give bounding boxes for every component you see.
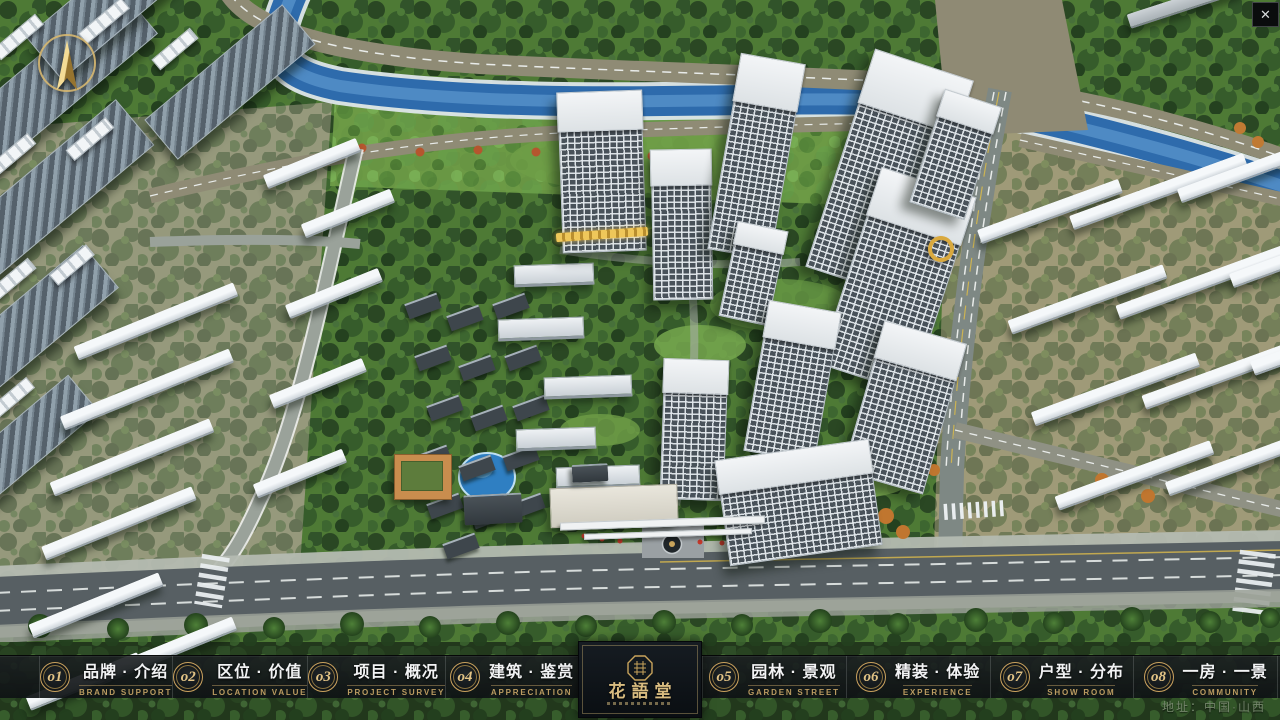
close-icon: ✕ [1260,7,1271,23]
nav-label-en: GARDEN STREET [748,685,840,697]
nav-item-project[interactable]: o3 项目 · 概况 PROJECT SURVEY [307,656,445,698]
building-row [285,268,383,319]
nav-label-zh: 项目 · 概况 [354,658,439,682]
nav-number: o3 [316,669,331,686]
building-courtyard [458,355,495,382]
compass-needle-icon [50,40,84,90]
project-address: 地址：中国·山西 [1162,698,1266,715]
nav-label-en: BRAND SUPPORT [79,685,172,697]
building-row [28,572,163,638]
nav-number-badge: o1 [40,662,70,692]
nav-label-zh: 精装 · 体验 [895,658,980,682]
nav-item-garden[interactable]: o5 园林 · 景观 GARDEN STREET [702,656,846,698]
tower-roof [650,148,713,186]
building-courtyard [492,293,529,320]
nav-number-badge: o2 [173,662,203,692]
nav-labels: 品牌 · 介绍 BRAND SUPPORT [79,658,172,697]
nav-labels: 建筑 · 鉴赏 APPRECIATION [489,658,574,697]
close-button[interactable]: ✕ [1252,2,1279,27]
nav-number-badge: o8 [1144,662,1174,692]
nav-number: o7 [1007,669,1022,686]
nav-number: o8 [1151,669,1166,686]
nav-labels: 项目 · 概况 PROJECT SURVEY [347,658,445,697]
building-courtyard [404,293,441,320]
nav-label-en: EXPERIENCE [903,685,973,697]
building-row [269,358,367,409]
building-row [41,486,197,561]
nav-label-zh: 建筑 · 鉴赏 [489,658,574,682]
nav-label-zh: 一房 · 一景 [1183,658,1268,682]
tower-roof [732,53,806,113]
nav-label-en: LOCATION VALUE [212,685,307,697]
building-courtyard [446,305,483,332]
nav-labels: 户型 · 分布 SHOW ROOM [1039,658,1124,697]
nav-item-location[interactable]: o2 区位 · 价值 LOCATION VALUE [172,656,307,698]
nav-labels: 精装 · 体验 EXPERIENCE [895,658,980,697]
building-courtyard [426,395,463,422]
building-row [253,449,348,499]
building-midrise [516,427,597,452]
tower-roof [762,300,841,350]
nav-item-brand[interactable]: o1 品牌 · 介绍 BRAND SUPPORT [39,656,172,698]
nav-number-badge: o4 [450,662,480,692]
nav-label-zh: 户型 · 分布 [1039,658,1124,682]
nav-item-floorplan[interactable]: o7 户型 · 分布 SHOW ROOM [990,656,1134,698]
tower-roof [733,221,789,255]
seal-emblem-icon [627,655,653,681]
nav-number-badge: o5 [709,662,739,692]
nav-number-badge: o7 [1000,662,1030,692]
nav-number: o5 [716,669,731,686]
building-row [1127,0,1244,29]
nav-label-en: SHOW ROOM [1047,685,1115,697]
project-logo-panel[interactable]: 花語堂 [578,641,702,718]
building-row [263,138,361,189]
nav-labels: 一房 · 一景 COMMUNITY [1183,658,1268,697]
building-tower [743,301,840,463]
nav-label-zh: 区位 · 价值 [217,658,302,682]
nav-number: o1 [48,669,63,686]
building-pavilion [463,493,522,526]
nav-number: o2 [181,669,196,686]
nav-group-right: o5 园林 · 景观 GARDEN STREET o6 精装 · 体验 EXPE… [702,656,1278,698]
nav-item-architecture[interactable]: o4 建筑 · 鉴赏 APPRECIATION [445,656,578,698]
building-midrise [498,317,585,342]
compass-icon [38,34,96,92]
tower-roof [936,89,1002,135]
project-name: 花語堂 [603,683,678,700]
building-courtyard [470,405,507,432]
logo-subtitle-line [607,702,673,705]
nav-label-en: COMMUNITY [1192,685,1258,697]
nav-number-badge: o6 [856,662,886,692]
site-plan-buildings [0,0,1280,720]
building-rooftop [151,28,198,71]
tower-roof [556,90,643,132]
nav-label-en: PROJECT SURVEY [347,685,445,697]
building-courtyard [458,455,495,482]
nav-label-zh: 品牌 · 介绍 [83,658,168,682]
nav-number: o6 [864,669,879,686]
tower-roof [662,358,729,395]
nav-group-left: o1 品牌 · 介绍 BRAND SUPPORT o2 区位 · 价值 LOCA… [39,656,578,698]
building-highrise-slab [144,4,315,160]
building-tower [651,149,714,300]
building-row [301,189,396,239]
logo-frame: 花語堂 [582,645,698,714]
nav-item-interior[interactable]: o6 精装 · 体验 EXPERIENCE [846,656,990,698]
nav-item-views[interactable]: o8 一房 · 一景 COMMUNITY [1133,656,1277,698]
nav-number: o4 [458,669,473,686]
building-midrise [544,374,633,399]
nav-number-badge: o3 [308,662,338,692]
nav-labels: 园林 · 景观 GARDEN STREET [748,658,840,697]
nav-label-en: APPRECIATION [491,685,572,697]
building-midrise [514,263,595,288]
building-green-roof [401,461,443,491]
sales-presentation-window: ✕ o1 品牌 · 介绍 BRAND SUPPORT o2 区位 · 价值 LO… [0,0,1280,720]
nav-label-zh: 园林 · 景观 [751,658,836,682]
building-courtyard [504,345,541,372]
building-courtyard [442,533,479,560]
building-tower [715,440,882,566]
building-pavilion [572,463,609,483]
building-compound [394,454,452,500]
building-courtyard [414,345,451,372]
nav-labels: 区位 · 价值 LOCATION VALUE [212,658,307,697]
